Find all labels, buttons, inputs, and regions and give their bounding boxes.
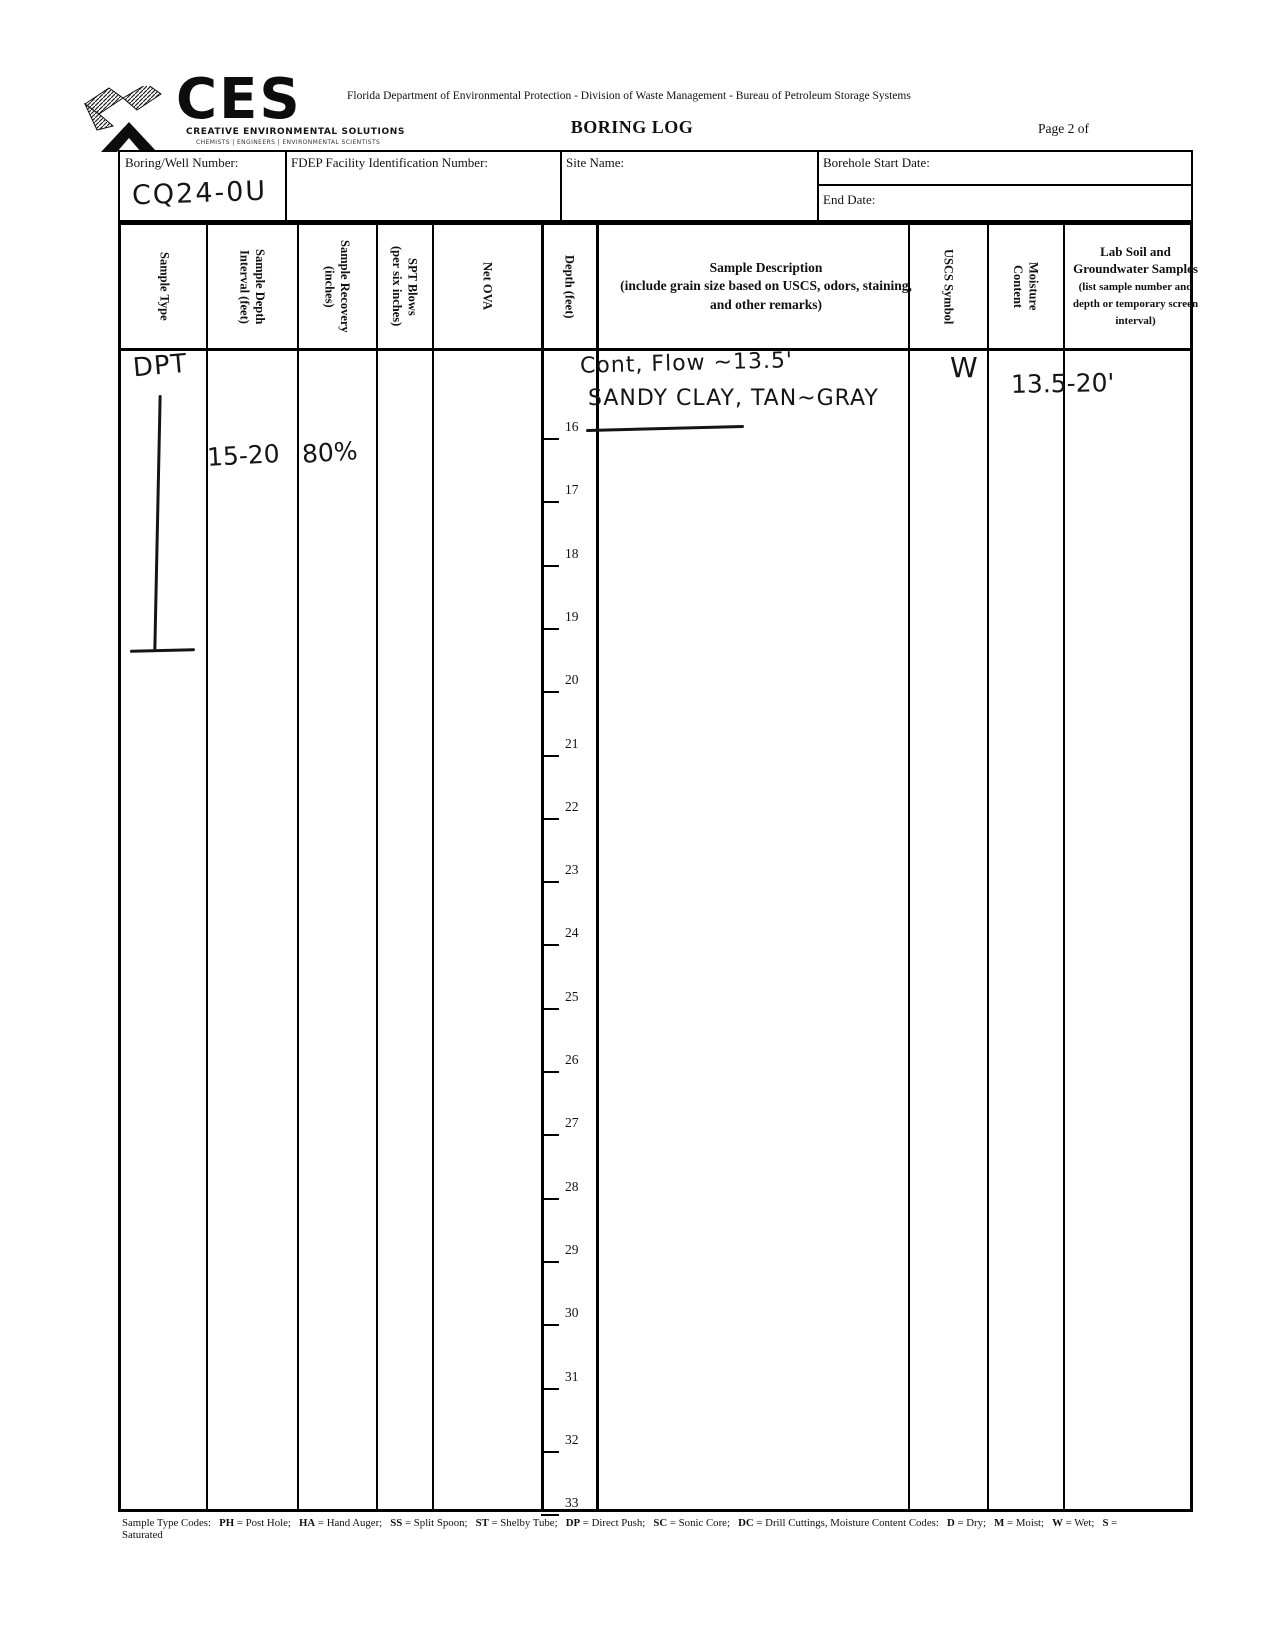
- info-divider: [560, 152, 562, 220]
- boring-log-page: CES CREATIVE ENVIRONMENTAL SOLUTIONS CHE…: [0, 0, 1275, 1650]
- depth-tick: [541, 1451, 559, 1453]
- depth-tick: [541, 691, 559, 693]
- handwritten-moisture-content: W: [950, 351, 978, 384]
- depth-label: 30: [565, 1305, 599, 1323]
- info-divider: [817, 152, 819, 220]
- info-divider: [817, 184, 1191, 186]
- depth-label: 23: [565, 862, 599, 880]
- depth-tick: [541, 818, 559, 820]
- fdep-facility-id-label: FDEP Facility Identification Number:: [291, 155, 488, 171]
- end-date-label: End Date:: [823, 192, 875, 208]
- depth-tick: [541, 881, 559, 883]
- depth-tick: [541, 755, 559, 757]
- depth-tick: [541, 1514, 559, 1516]
- depth-tick: [541, 565, 559, 567]
- borehole-start-date-label: Borehole Start Date:: [823, 155, 930, 171]
- depth-tick: [541, 1324, 559, 1326]
- depth-label: 26: [565, 1052, 599, 1070]
- handwritten-soil-name: SANDY CLAY: [588, 386, 735, 411]
- depth-tick: [541, 944, 559, 946]
- ces-logo-icon: [83, 86, 175, 158]
- depth-tick: [541, 628, 559, 630]
- logo-company-name: CREATIVE ENVIRONMENTAL SOLUTIONS: [186, 127, 405, 137]
- depth-tick: [541, 1261, 559, 1263]
- form-title: BORING LOG: [492, 117, 772, 138]
- depth-label: 27: [565, 1115, 599, 1133]
- site-name-label: Site Name:: [566, 155, 624, 171]
- page-number-label: Page 2 of: [1038, 121, 1089, 137]
- depth-label: 25: [565, 989, 599, 1007]
- handwritten-sample-type: DPT: [132, 349, 189, 384]
- handwritten-sample-depth-interval: 15-20: [206, 439, 280, 472]
- info-box: Boring/Well Number: CQ24-0U FDEP Facilit…: [118, 150, 1193, 222]
- depth-tick: [541, 1134, 559, 1136]
- handwritten-soil-color: , TAN~GRAY: [735, 386, 879, 411]
- depth-label: 31: [565, 1369, 599, 1387]
- depth-tick: [541, 1008, 559, 1010]
- depth-tick: [541, 1388, 559, 1390]
- depth-tick: [541, 1198, 559, 1200]
- boring-well-number-label: Boring/Well Number:: [125, 155, 238, 171]
- depth-tick: [541, 1071, 559, 1073]
- depth-label: 22: [565, 799, 599, 817]
- boring-well-number-value: CQ24-0U: [132, 176, 268, 212]
- depth-label: 19: [565, 609, 599, 627]
- depth-label: 28: [565, 1179, 599, 1197]
- depth-tick: [541, 438, 559, 440]
- depth-label: 20: [565, 672, 599, 690]
- depth-label: 32: [565, 1432, 599, 1450]
- handwritten-sample-recovery: 80%: [301, 436, 358, 469]
- log-table: Sample Type Sample Depth Interval (feet)…: [118, 222, 1193, 1512]
- agency-line: Florida Department of Environmental Prot…: [347, 90, 947, 102]
- depth-tick: [541, 501, 559, 503]
- logo-tagline: CHEMISTS | ENGINEERS | ENVIRONMENTAL SCI…: [196, 139, 380, 146]
- sample-codes-line: Sample Type Codes: PH = Post Hole; HA = …: [122, 1517, 1152, 1541]
- depth-label: 24: [565, 925, 599, 943]
- depth-label: 18: [565, 546, 599, 564]
- depth-label: 21: [565, 736, 599, 754]
- depth-label: 29: [565, 1242, 599, 1260]
- handwritten-lab-sample-interval: 13.5-20': [1011, 368, 1115, 399]
- depth-scale: 161718192021222324252627282930313233: [121, 225, 1190, 1509]
- info-divider: [285, 152, 287, 220]
- depth-label: 33: [565, 1495, 599, 1513]
- depth-label: 17: [565, 482, 599, 500]
- handwritten-description-line2: SANDY CLAY, TAN~GRAY: [588, 386, 879, 411]
- logo-acronym: CES: [176, 72, 302, 128]
